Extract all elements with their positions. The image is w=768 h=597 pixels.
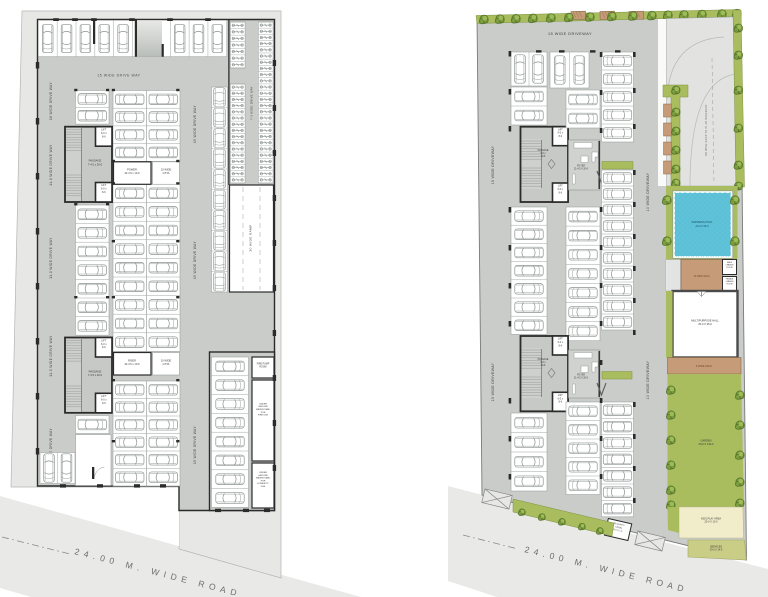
svg-text:ROOM: ROOM xyxy=(259,367,266,369)
svg-text:8-6: 8-6 xyxy=(102,346,106,349)
svg-text:GARDEN: GARDEN xyxy=(700,438,711,442)
svg-text:11-0 WIDE DRIVE WAY: 11-0 WIDE DRIVE WAY xyxy=(49,144,53,186)
svg-text:10-4.5 x 10-6: 10-4.5 x 10-6 xyxy=(124,362,140,366)
svg-text:GROUND: GROUND xyxy=(258,475,268,477)
svg-text:11-0 WIDE DRIVE WAY: 11-0 WIDE DRIVE WAY xyxy=(49,237,53,279)
svg-text:7-3 WIDE DRIVE WAY: 7-3 WIDE DRIVE WAY xyxy=(250,86,254,120)
svg-text:29-0 X 140-0: 29-0 X 140-0 xyxy=(699,442,715,446)
svg-text:FOR: FOR xyxy=(261,412,266,414)
svg-text:21-4.5 X 20-6: 21-4.5 X 20-6 xyxy=(574,378,589,380)
svg-text:FOYER: FOYER xyxy=(577,374,585,376)
svg-text:20-0 X 25-0: 20-0 X 25-0 xyxy=(695,225,709,228)
svg-text:FIRE USE: FIRE USE xyxy=(258,415,269,417)
svg-text:10-6: 10-6 xyxy=(541,365,546,367)
svg-text:30 WIDE RAMP: 30 WIDE RAMP xyxy=(249,225,253,252)
svg-text:FOR: FOR xyxy=(261,480,266,482)
svg-text:ROOM: ROOM xyxy=(727,283,733,285)
svg-text:20-0 X 13-0: 20-0 X 13-0 xyxy=(704,521,718,524)
svg-text:6M WIDE RAMP TO P1-02 BASEMENT: 6M WIDE RAMP TO P1-02 BASEMENT xyxy=(705,104,708,156)
svg-text:MULTIPURPOSE HALL: MULTIPURPOSE HALL xyxy=(691,318,719,322)
svg-text:15 WIDE DRIVEWAY: 15 WIDE DRIVEWAY xyxy=(491,145,495,184)
svg-text:ROOM: ROOM xyxy=(727,267,733,269)
svg-text:RISER: RISER xyxy=(128,358,136,362)
svg-text:FOYER: FOYER xyxy=(577,165,585,167)
svg-text:15 WIDE DRIVE WAY: 15 WIDE DRIVE WAY xyxy=(97,74,140,78)
svg-text:UNDER: UNDER xyxy=(259,403,267,405)
svg-text:PASSAGE: PASSAGE xyxy=(538,149,549,152)
svg-text:25-0 X 35-0: 25-0 X 35-0 xyxy=(698,322,712,326)
svg-text:FIRE PUMP: FIRE PUMP xyxy=(257,363,270,365)
svg-text:POWER: POWER xyxy=(127,167,137,171)
svg-text:DOMESTIC: DOMESTIC xyxy=(257,483,269,485)
svg-text:GTTA: GTTA xyxy=(163,362,170,366)
svg-text:10 WIDE: 10 WIDE xyxy=(161,167,172,171)
svg-text:PASSAGE: PASSAGE xyxy=(89,370,102,374)
svg-text:16 WIDE DRIVE WAY: 16 WIDE DRIVE WAY xyxy=(49,82,53,120)
svg-text:USE: USE xyxy=(261,486,266,488)
svg-text:SWIMMING POOL: SWIMMING POOL xyxy=(692,221,714,224)
svg-text:29-0 X 14-0: 29-0 X 14-0 xyxy=(710,549,723,552)
svg-text:PASSAGE: PASSAGE xyxy=(538,358,549,361)
svg-text:PASSAGE: PASSAGE xyxy=(89,159,102,163)
svg-text:7-4.5 x 20-0: 7-4.5 x 20-0 xyxy=(88,162,103,166)
svg-text:10 WIDE: 10 WIDE xyxy=(161,358,172,362)
svg-text:WATER TANK: WATER TANK xyxy=(256,477,270,480)
svg-text:8-6: 8-6 xyxy=(102,402,106,405)
svg-text:11-0 WIDE DRIVE WAY: 11-0 WIDE DRIVE WAY xyxy=(49,335,53,377)
svg-text:10-6: 10-6 xyxy=(541,156,546,158)
svg-text:5-0 x: 5-0 x xyxy=(540,362,546,364)
svg-text:8 WIDE DECK: 8 WIDE DECK xyxy=(696,365,713,368)
svg-text:5-0 x: 5-0 x xyxy=(540,153,546,155)
svg-text:15 WIDE DRIVE WAY: 15 WIDE DRIVE WAY xyxy=(193,426,197,464)
svg-text:10 WIDE WALK: 10 WIDE WALK xyxy=(694,275,711,278)
svg-text:15 WIDE DRIVEWAY: 15 WIDE DRIVEWAY xyxy=(491,362,495,401)
svg-text:15 WIDE DRIVE WAY: 15 WIDE DRIVE WAY xyxy=(193,105,197,143)
svg-text:7-4.5 x 20-0: 7-4.5 x 20-0 xyxy=(88,373,103,377)
svg-text:21-4.5 X 20-6: 21-4.5 X 20-6 xyxy=(574,169,589,171)
svg-text:10-4.5 x 10-6: 10-4.5 x 10-6 xyxy=(124,171,140,175)
svg-text:8-6: 8-6 xyxy=(102,135,106,138)
svg-text:10 WIDE DRIVEWAY: 10 WIDE DRIVEWAY xyxy=(646,172,650,211)
svg-text:GROUND: GROUND xyxy=(258,406,268,408)
svg-text:UNDER: UNDER xyxy=(259,472,267,474)
svg-text:15 WIDE DRIVE WAY: 15 WIDE DRIVE WAY xyxy=(193,241,197,279)
svg-text:10 WIDE DRIVEWAY: 10 WIDE DRIVEWAY xyxy=(646,360,650,399)
svg-text:15 WIDE DRIVEWAY: 15 WIDE DRIVEWAY xyxy=(548,32,592,36)
svg-text:GTTA: GTTA xyxy=(163,171,170,175)
svg-text:8-6: 8-6 xyxy=(102,191,106,194)
svg-text:WATER TANK: WATER TANK xyxy=(256,408,270,411)
